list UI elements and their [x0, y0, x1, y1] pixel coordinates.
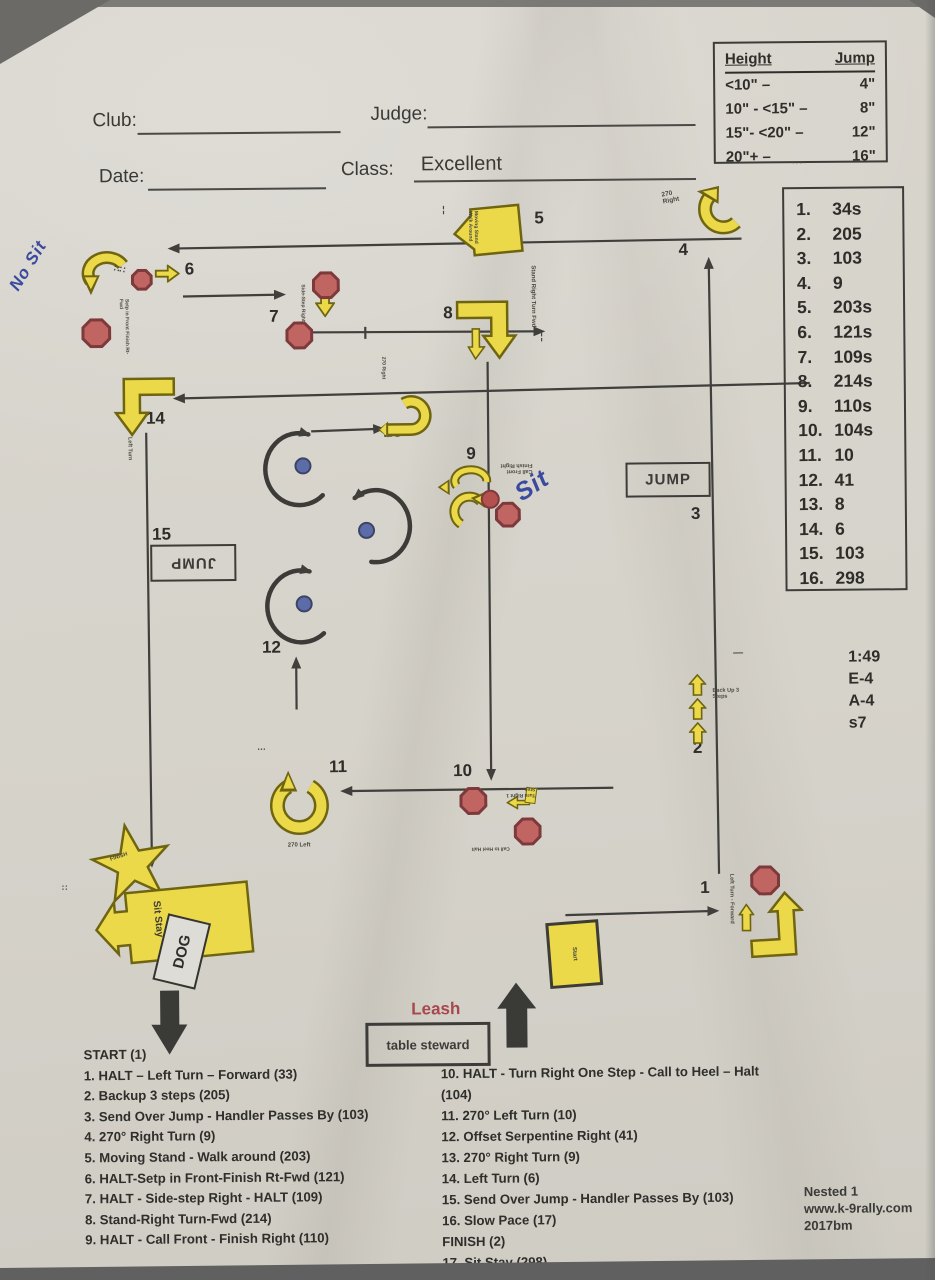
- sign-14-left-turn: [112, 375, 177, 438]
- path-8-to-10: [488, 362, 492, 778]
- sign-6-curl: [77, 249, 135, 304]
- serpentine-arc-top: [265, 433, 323, 505]
- station-number-7: 7: [269, 307, 279, 327]
- pen-mark: ∷: [62, 884, 67, 893]
- photo-edge-right: [925, 0, 935, 1280]
- sign-4-270-right: [686, 185, 747, 243]
- sign-8-small-down-arrow: [467, 328, 485, 360]
- sign-11-text: 270 Left: [288, 842, 318, 849]
- score-row: 1.34s: [796, 196, 902, 222]
- score-row: 11.10: [798, 442, 904, 468]
- entry-thick-arrow-up: [497, 982, 537, 1047]
- station-score-list: 1.34s 2.205 3.103 4.9 5.203s 6.121s 7.10…: [782, 186, 908, 591]
- course-step: 14. Left Turn (6): [442, 1165, 794, 1189]
- score-row: 2.205: [796, 221, 902, 247]
- course-step: 15. Send Over Jump - Handler Passes By (…: [442, 1186, 794, 1210]
- station-number-6: 6: [185, 259, 195, 279]
- path-1-to-4: [709, 260, 719, 874]
- judge-label: Judge:: [370, 103, 427, 125]
- jump-row-j: 4": [860, 72, 876, 96]
- scanned-rally-course-sheet: Club: Judge: Date: Class: Excellent Heig…: [0, 0, 935, 1280]
- pen-mark: …: [257, 742, 266, 752]
- course-step: 12. Offset Serpentine Right (41): [441, 1123, 793, 1147]
- sign-1-small-up-arrow: [738, 904, 754, 932]
- credit-line: Nested 1: [804, 1182, 913, 1200]
- sign-2-up-arrow: [688, 674, 706, 696]
- sign-6-right-arrow: [154, 264, 180, 282]
- course-step: 13. 270° Right Turn (9): [441, 1144, 793, 1168]
- credit-line: www.k-9rally.com: [804, 1199, 913, 1217]
- pen-mark: —: [733, 648, 743, 659]
- leash-label: Leash: [411, 999, 460, 1019]
- jump-row-h: 15"- <20" –: [725, 121, 803, 146]
- score-row: 6.121s: [797, 319, 903, 345]
- jump-row-h: <10" –: [725, 73, 770, 97]
- sign-5-text: Moving Stand Walk Around: [466, 211, 478, 251]
- sign-14-text: Left Turn: [126, 437, 133, 469]
- jump-row-j: 8": [860, 96, 876, 120]
- info-e: E-4: [848, 668, 880, 690]
- sign-11-270-left: [267, 767, 334, 838]
- jump-height-table: Height Jump <10" –4" 10" - <15" –8" 15"-…: [713, 40, 888, 164]
- footprints-icon: ∷∷: [113, 263, 126, 276]
- sign-10-text-a: Turn Right 1 Step: [501, 785, 535, 797]
- start-sign-label: Start: [571, 947, 578, 961]
- course-info-block: 1:49 E-4 A-4 s7: [848, 646, 881, 734]
- pen-mark: ¦: [442, 204, 445, 214]
- dog-label: DOG: [169, 933, 194, 970]
- credit-line: 2017bm: [804, 1216, 913, 1234]
- serpentine-post: [294, 457, 311, 474]
- path-13-to-14: [176, 383, 810, 399]
- score-row: 5.203s: [797, 295, 903, 321]
- course-step: 9. HALT - Call Front - Finish Right (110…: [85, 1228, 437, 1252]
- jump-row-h: 10" - <15" –: [725, 97, 807, 122]
- station-number-8: 8: [443, 303, 453, 323]
- station-number-15: 15: [152, 525, 171, 545]
- score-row: 3.103: [797, 245, 903, 271]
- pen-mark: ¦: [540, 331, 543, 341]
- jump-box-3: JUMP: [625, 462, 710, 498]
- sign-6-text: Setp in Front Finish Rt-Fwd: [117, 299, 129, 363]
- score-row: 10.104s: [798, 418, 904, 444]
- club-label: Club:: [92, 110, 137, 132]
- class-label: Class:: [341, 159, 394, 181]
- score-row: 9.110s: [798, 393, 904, 419]
- info-a: A-4: [848, 690, 880, 712]
- course-step: 10. HALT - Turn Right One Step - Call to…: [441, 1060, 793, 1105]
- course-description-left: START (1) 1. HALT – Left Turn – Forward …: [84, 1042, 438, 1251]
- path-start-to-1: [565, 911, 716, 915]
- info-s: s7: [849, 712, 881, 734]
- jump-row-j: 12": [852, 120, 876, 144]
- info-time: 1:49: [848, 646, 880, 668]
- credits-block: Nested 1 www.k-9rally.com 2017bm: [804, 1182, 913, 1234]
- station-number-3: 3: [691, 504, 701, 524]
- jump-box-15: JUMP: [150, 544, 236, 582]
- jump-box-15-label: JUMP: [170, 554, 216, 571]
- score-row: 4.9: [797, 270, 903, 296]
- course-step: 11. 270° Left Turn (10): [441, 1102, 793, 1126]
- sign-1-text: Left Turn - Forward: [728, 874, 735, 938]
- score-row: 14.6: [799, 516, 905, 542]
- score-row: 8.214s: [798, 368, 904, 394]
- station-number-10: 10: [453, 761, 472, 781]
- pen-mark: ····: [792, 157, 807, 169]
- sign-2-up-arrow: [689, 698, 707, 720]
- sign-13-270-curl: [378, 392, 444, 441]
- sign-2-text: Back Up 3 Steps: [712, 688, 742, 701]
- path-6-out: [183, 295, 283, 297]
- sign-8-text: Stand Right Turn Fwd: [529, 265, 537, 347]
- date-label: Date:: [99, 166, 145, 188]
- station-number-12: 12: [262, 638, 281, 658]
- sign-5-moving-stand: [446, 198, 531, 263]
- score-row: 16.298: [799, 565, 905, 591]
- score-row: 7.109s: [797, 344, 903, 370]
- score-row: 13.8: [799, 491, 905, 517]
- halt-dot: [481, 490, 500, 509]
- jump-row-h: 20"+ –: [726, 145, 771, 169]
- class-value: Excellent: [421, 153, 502, 177]
- path-14-to-16: [146, 433, 152, 865]
- sign-2-up-arrow: [689, 722, 707, 744]
- jump-row-j: 16": [852, 144, 876, 168]
- jump-box-3-label: JUMP: [645, 471, 691, 488]
- score-row: 15.103: [799, 540, 905, 566]
- score-row: 12.41: [799, 467, 905, 493]
- path-12-to-13: [311, 429, 382, 432]
- serpentine-post: [358, 522, 375, 539]
- jump-table-col-jump: Jump: [835, 46, 875, 70]
- sign-8-right-turn: [455, 298, 520, 361]
- station-number-4: 4: [679, 240, 689, 260]
- photo-edge-top: [0, 0, 935, 7]
- sign-10-text-b: Call to Heel Halt: [468, 845, 510, 851]
- sign-1-left-turn-forward: [746, 890, 806, 961]
- jump-table-col-height: Height: [725, 47, 772, 71]
- station-number-5: 5: [534, 208, 544, 228]
- course-description-right: 10. HALT - Turn Right One Step - Call to…: [441, 1060, 795, 1273]
- station-number-1: 1: [700, 878, 710, 898]
- start-sign: Start: [545, 919, 603, 989]
- sign-13-text: 270 Right: [380, 357, 386, 391]
- serpentine-post: [296, 595, 313, 612]
